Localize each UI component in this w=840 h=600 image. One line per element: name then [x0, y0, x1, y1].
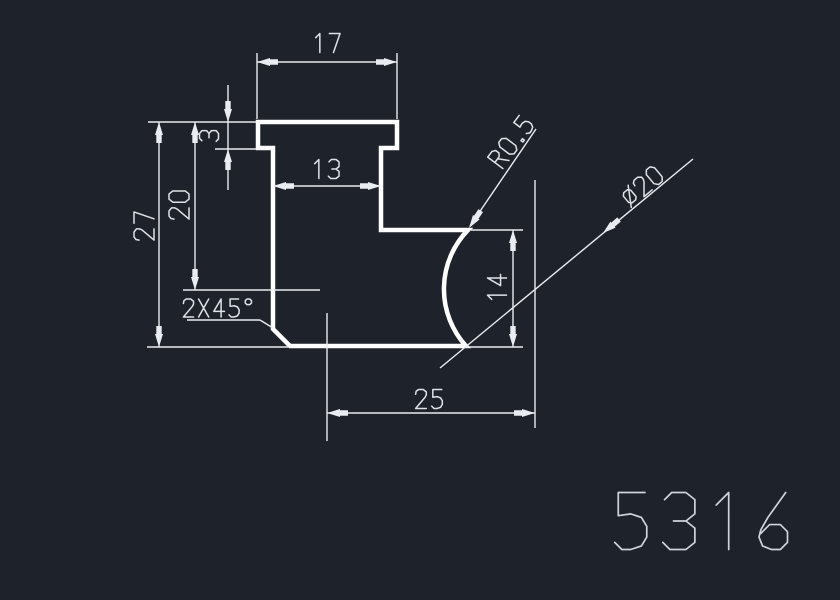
cad-canvas: [0, 0, 840, 600]
chamfer-label: [183, 299, 251, 317]
fillet-callout: [466, 115, 536, 230]
diameter-callout: [440, 159, 693, 368]
dim-label-upper-height: [169, 191, 189, 219]
dimension-neck-width: [273, 160, 381, 191]
arrowhead: [509, 230, 517, 251]
dim-label-right-height: [488, 274, 507, 299]
leader-line: [440, 159, 693, 368]
dimension-top-width: [257, 34, 397, 120]
cad-viewport: [0, 0, 840, 600]
arrowhead: [376, 58, 397, 66]
arrowhead: [224, 149, 232, 170]
dim-label-flange-thickness: [200, 131, 219, 142]
arrowhead: [360, 182, 381, 190]
dimension-right-height: [466, 230, 523, 347]
dim-label-top-width: [316, 34, 340, 53]
arrowhead: [224, 101, 232, 122]
dimension-upper-height: [169, 122, 320, 290]
dim-label-center-distance: [416, 390, 443, 409]
arrowhead: [191, 269, 199, 290]
arrowhead: [514, 409, 535, 417]
dimension-flange-thickness: [200, 85, 257, 190]
arrowhead: [257, 58, 278, 66]
arrowhead: [509, 326, 517, 347]
dimension-total-height: [134, 122, 288, 347]
part-number-label: [615, 493, 788, 550]
part-outline-path: [258, 122, 468, 346]
arrowhead: [273, 182, 294, 190]
chamfer-callout: [183, 299, 273, 328]
arrowhead: [191, 122, 199, 143]
dim-label-neck-width: [315, 160, 339, 179]
dim-label-total-height: [134, 212, 154, 240]
dimension-center-distance: [327, 180, 535, 441]
arrowhead: [327, 409, 348, 417]
arrowhead: [155, 122, 163, 143]
arrowhead: [466, 208, 484, 230]
arrowhead: [155, 326, 163, 347]
